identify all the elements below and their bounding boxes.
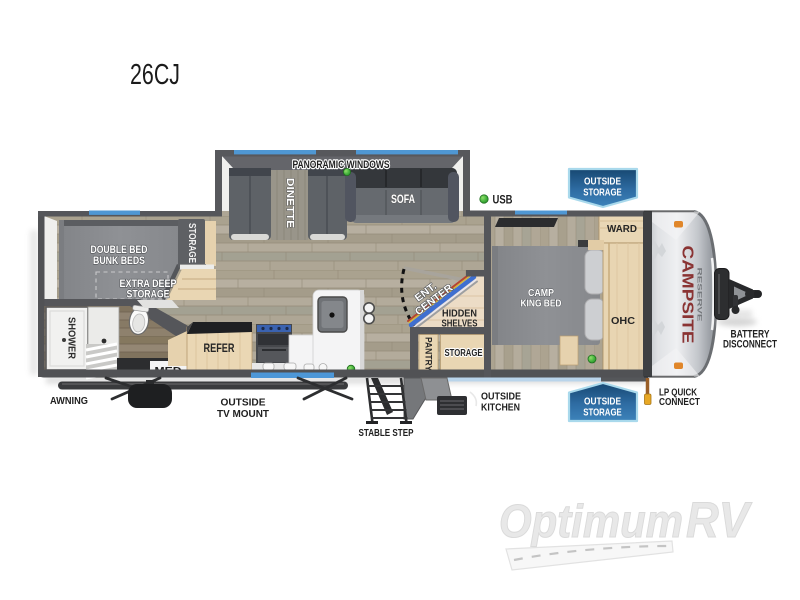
svg-text:BUNK BEDS: BUNK BEDS	[93, 255, 145, 267]
svg-text:DISCONNECT: DISCONNECT	[723, 339, 777, 351]
svg-text:REFER: REFER	[204, 343, 236, 355]
svg-text:CAMPSITE: CAMPSITE	[679, 246, 696, 344]
svg-text:TV MOUNT: TV MOUNT	[217, 408, 270, 420]
svg-text:SHOWER: SHOWER	[66, 317, 77, 360]
svg-text:CAMP: CAMP	[528, 288, 554, 299]
svg-text:STORAGE: STORAGE	[445, 347, 483, 359]
svg-text:OHC: OHC	[611, 315, 635, 327]
svg-text:AWNING: AWNING	[50, 395, 88, 407]
svg-text:OUTSIDE: OUTSIDE	[584, 177, 621, 188]
svg-text:DINETTE: DINETTE	[284, 178, 296, 228]
svg-text:26CJ: 26CJ	[130, 59, 180, 91]
svg-text:WARD: WARD	[607, 223, 637, 235]
svg-text:KITCHEN: KITCHEN	[481, 402, 520, 414]
svg-text:STORAGE: STORAGE	[186, 223, 197, 263]
svg-text:PANTRY: PANTRY	[424, 337, 434, 371]
svg-text:STORAGE: STORAGE	[127, 289, 170, 301]
svg-text:USB: USB	[493, 193, 513, 207]
svg-text:OUTSIDE: OUTSIDE	[584, 397, 621, 408]
svg-text:KING BED: KING BED	[521, 299, 562, 310]
svg-text:SOFA: SOFA	[391, 194, 415, 206]
svg-text:CONNECT: CONNECT	[659, 396, 700, 408]
svg-text:STORAGE: STORAGE	[583, 188, 622, 199]
svg-text:STABLE STEP: STABLE STEP	[359, 427, 414, 439]
svg-text:RESERVE: RESERVE	[696, 268, 703, 323]
svg-text:RV: RV	[686, 492, 752, 548]
svg-text:PANORAMIC WINDOWS: PANORAMIC WINDOWS	[293, 159, 390, 171]
svg-text:OUTSIDE: OUTSIDE	[221, 397, 266, 409]
svg-text:STORAGE: STORAGE	[583, 408, 622, 419]
svg-text:Optimum: Optimum	[499, 495, 683, 547]
